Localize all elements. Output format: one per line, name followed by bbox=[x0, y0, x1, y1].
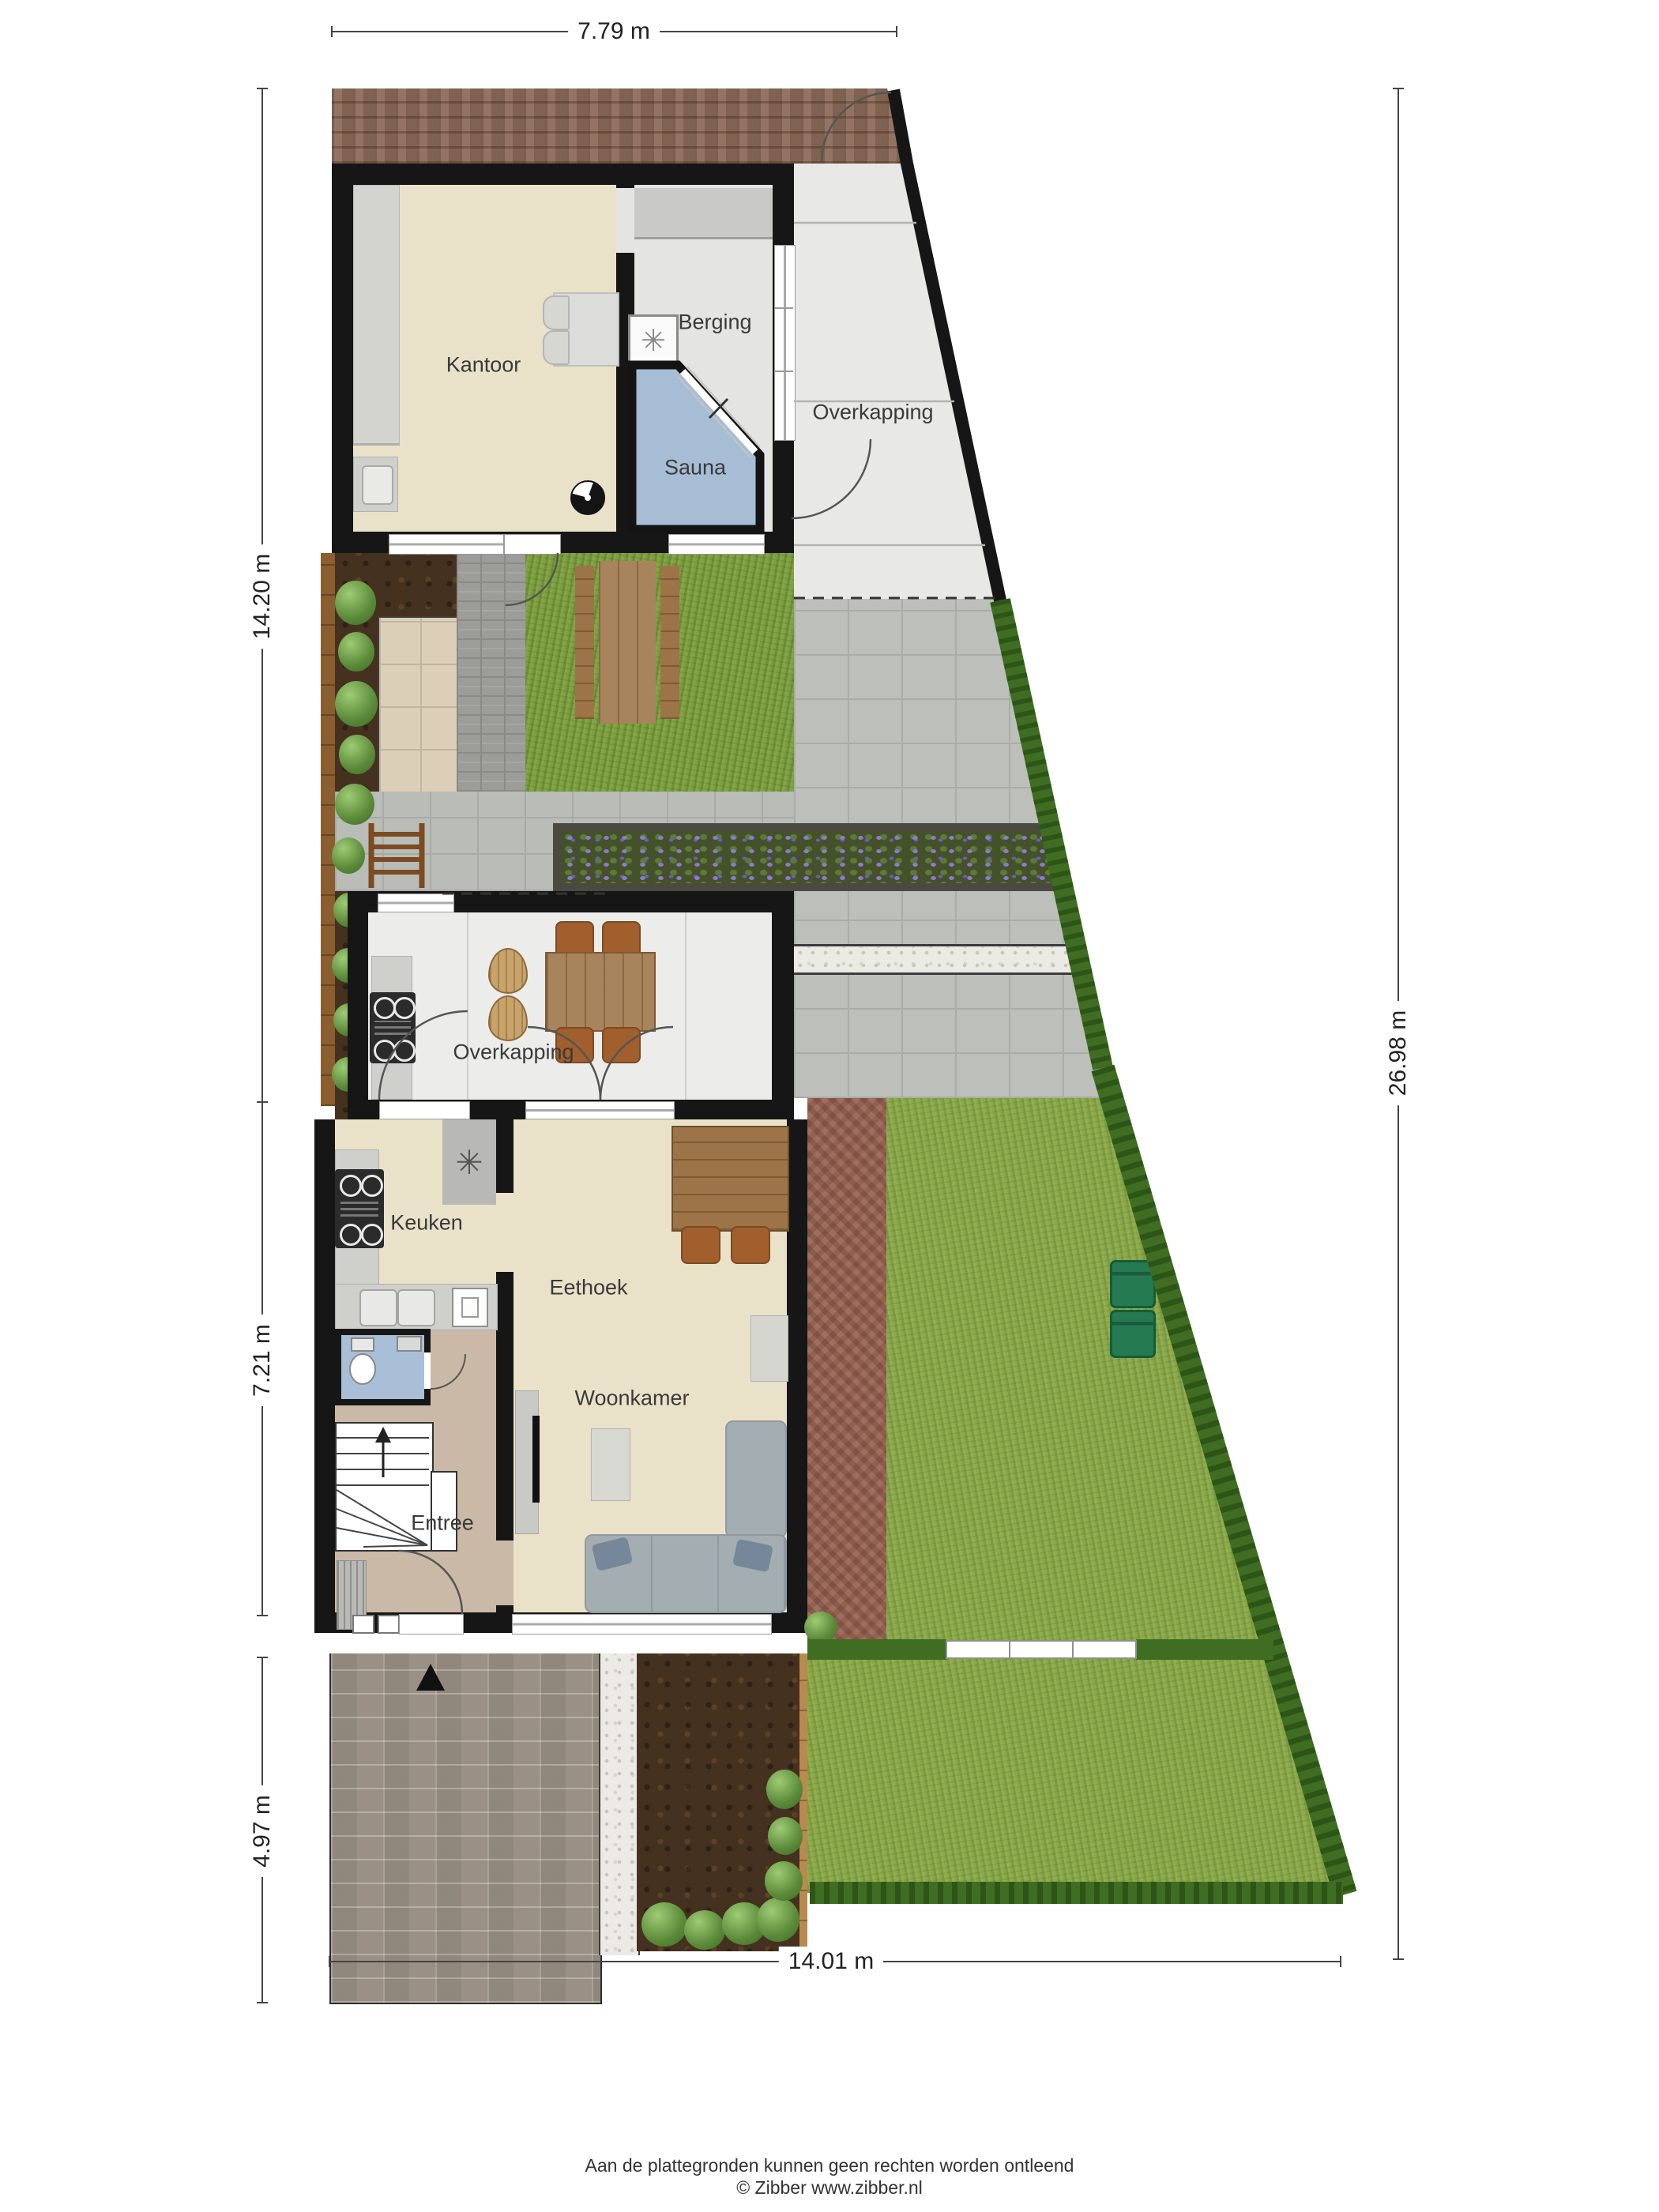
label-woonkamer: Woonkamer bbox=[574, 1386, 689, 1411]
label-keuken: Keuken bbox=[390, 1211, 463, 1236]
tv-screen bbox=[532, 1416, 540, 1503]
kantoor-cabinet bbox=[353, 185, 400, 446]
dim-label-right: 26.98 m bbox=[1383, 1001, 1413, 1105]
keuken-eethoek-opening bbox=[496, 1193, 513, 1272]
grill bbox=[340, 1201, 378, 1217]
tile-path bbox=[378, 616, 460, 795]
appliance-door bbox=[461, 1297, 479, 1318]
label-eethoek: Eethoek bbox=[549, 1276, 627, 1300]
kitchen-sink bbox=[397, 1289, 435, 1326]
vent-icon: ✳ bbox=[455, 1143, 483, 1182]
front-door-opening bbox=[399, 1614, 464, 1635]
burner bbox=[361, 1224, 383, 1246]
lavender-plants bbox=[561, 831, 1051, 883]
berging-shelf bbox=[634, 188, 773, 239]
label-overkapping-top: Overkapping bbox=[812, 401, 933, 425]
dim-tick bbox=[257, 88, 268, 89]
shrub bbox=[335, 681, 378, 727]
dim-tick bbox=[331, 26, 333, 37]
sofa-chaise bbox=[725, 1420, 787, 1538]
dim-label-left-upper: 14.20 m bbox=[247, 544, 277, 649]
sink-basin bbox=[362, 465, 393, 505]
berging-washing-machine: ✳ bbox=[628, 314, 679, 367]
woonkamer-front-window bbox=[512, 1614, 772, 1635]
dim-label-top: 7.79 m bbox=[568, 17, 660, 47]
coffee-table bbox=[591, 1428, 630, 1501]
kitchen-appliance bbox=[452, 1288, 488, 1327]
shrub bbox=[335, 581, 376, 625]
dim-tick bbox=[1340, 1956, 1341, 1967]
picnic-bench-right bbox=[660, 566, 679, 719]
shrub bbox=[684, 1910, 725, 1950]
berging-window-south bbox=[668, 534, 765, 555]
mid-window-north bbox=[378, 893, 454, 912]
shrub bbox=[332, 837, 365, 874]
shrub bbox=[765, 1861, 803, 1901]
back-alley-brick-band bbox=[332, 88, 905, 164]
footer-disclaimer: Aan de plattegronden kunnen geen rechten… bbox=[0, 2155, 1659, 2176]
mid-slider-opening bbox=[525, 1101, 675, 1119]
shrub bbox=[757, 1898, 799, 1942]
kantoor-berging-door-gap bbox=[616, 188, 634, 253]
label-kantoor: Kantoor bbox=[446, 353, 521, 378]
burner bbox=[374, 997, 396, 1019]
stove-center-dot bbox=[585, 495, 591, 501]
label-entree: Entree bbox=[411, 1511, 474, 1536]
floorplan-canvas: ✳ ✳ bbox=[0, 0, 1659, 2212]
room-toilet bbox=[341, 1335, 424, 1399]
eethoek-table bbox=[671, 1126, 789, 1232]
label-berging: Berging bbox=[678, 310, 751, 335]
kitchen-sink bbox=[359, 1289, 397, 1326]
dim-tick bbox=[896, 26, 897, 37]
shrub bbox=[338, 632, 374, 671]
dim-label-bottom: 14.01 m bbox=[779, 1947, 883, 1977]
vent-unit: ✳ bbox=[442, 1119, 496, 1205]
shrub bbox=[768, 1817, 803, 1855]
side-cabinet bbox=[750, 1315, 788, 1382]
toilet-door-gap bbox=[424, 1352, 431, 1389]
shrub bbox=[339, 735, 375, 774]
kantoor-garden-door-opening bbox=[504, 534, 561, 555]
driveway bbox=[329, 1653, 602, 2004]
dim-label-left-middle: 7.21 m bbox=[247, 1315, 277, 1406]
dim-tick bbox=[257, 1615, 268, 1616]
picnic-table bbox=[599, 561, 656, 724]
burner bbox=[361, 1175, 383, 1197]
entree-woonkamer-opening bbox=[496, 1540, 513, 1605]
front-fence-strip bbox=[799, 1653, 807, 1951]
desk-chair bbox=[543, 295, 570, 330]
burner bbox=[340, 1224, 362, 1246]
berging-glazed-door-east bbox=[774, 245, 796, 441]
dining-chair bbox=[731, 1226, 770, 1264]
shrub bbox=[804, 1612, 837, 1643]
gravel-strip-horizontal bbox=[794, 944, 1072, 975]
washing-machine-icon: ✳ bbox=[641, 323, 666, 359]
footer-copyright: © Zibber www.zibber.nl bbox=[0, 2177, 1659, 2199]
garbage-bin bbox=[1110, 1260, 1156, 1308]
dining-chair bbox=[681, 1226, 720, 1264]
picnic-bench-left bbox=[575, 566, 594, 719]
grill bbox=[374, 1021, 411, 1035]
kantoor-window-south bbox=[389, 534, 504, 555]
mid-left-door-opening bbox=[379, 1101, 470, 1119]
kantoor-sink-unit bbox=[353, 457, 398, 512]
left-garden-fence bbox=[321, 553, 335, 1106]
shrub bbox=[766, 1770, 803, 1809]
outdoor-dining-table bbox=[545, 952, 656, 1032]
label-overkapping-mid: Overkapping bbox=[453, 1040, 574, 1065]
soil-top-band bbox=[378, 553, 458, 616]
label-sauna: Sauna bbox=[664, 456, 726, 480]
right-lawn bbox=[807, 1098, 1346, 1893]
outdoor-kitchen-stove bbox=[370, 992, 416, 1063]
overkapping-top-floor bbox=[794, 164, 999, 599]
burner bbox=[393, 1040, 416, 1062]
burner bbox=[393, 997, 416, 1019]
lavender-planter bbox=[553, 823, 1059, 891]
shrub bbox=[641, 1902, 687, 1947]
burner bbox=[340, 1175, 362, 1197]
dim-label-left-lower: 4.97 m bbox=[247, 1785, 277, 1877]
meter-icon bbox=[378, 1615, 400, 1634]
dim-tick bbox=[257, 1657, 268, 1658]
brick-terrace-east bbox=[807, 1098, 886, 1642]
meter-icon bbox=[352, 1615, 374, 1634]
cobble-path bbox=[457, 553, 527, 792]
burner bbox=[374, 1040, 396, 1062]
desk-chair bbox=[543, 330, 570, 365]
dim-tick bbox=[329, 1956, 330, 1967]
dim-tick bbox=[1393, 88, 1404, 89]
middle-lawn bbox=[525, 553, 794, 793]
keuken-stove bbox=[335, 1169, 384, 1248]
garbage-bin bbox=[1110, 1310, 1156, 1358]
shrub bbox=[335, 784, 374, 825]
front-gravel-strip bbox=[599, 1653, 640, 1955]
dim-tick bbox=[1393, 1958, 1404, 1960]
wood-stove-icon bbox=[570, 480, 605, 515]
dim-tick bbox=[257, 2002, 268, 2003]
dining-chair bbox=[602, 1027, 641, 1063]
